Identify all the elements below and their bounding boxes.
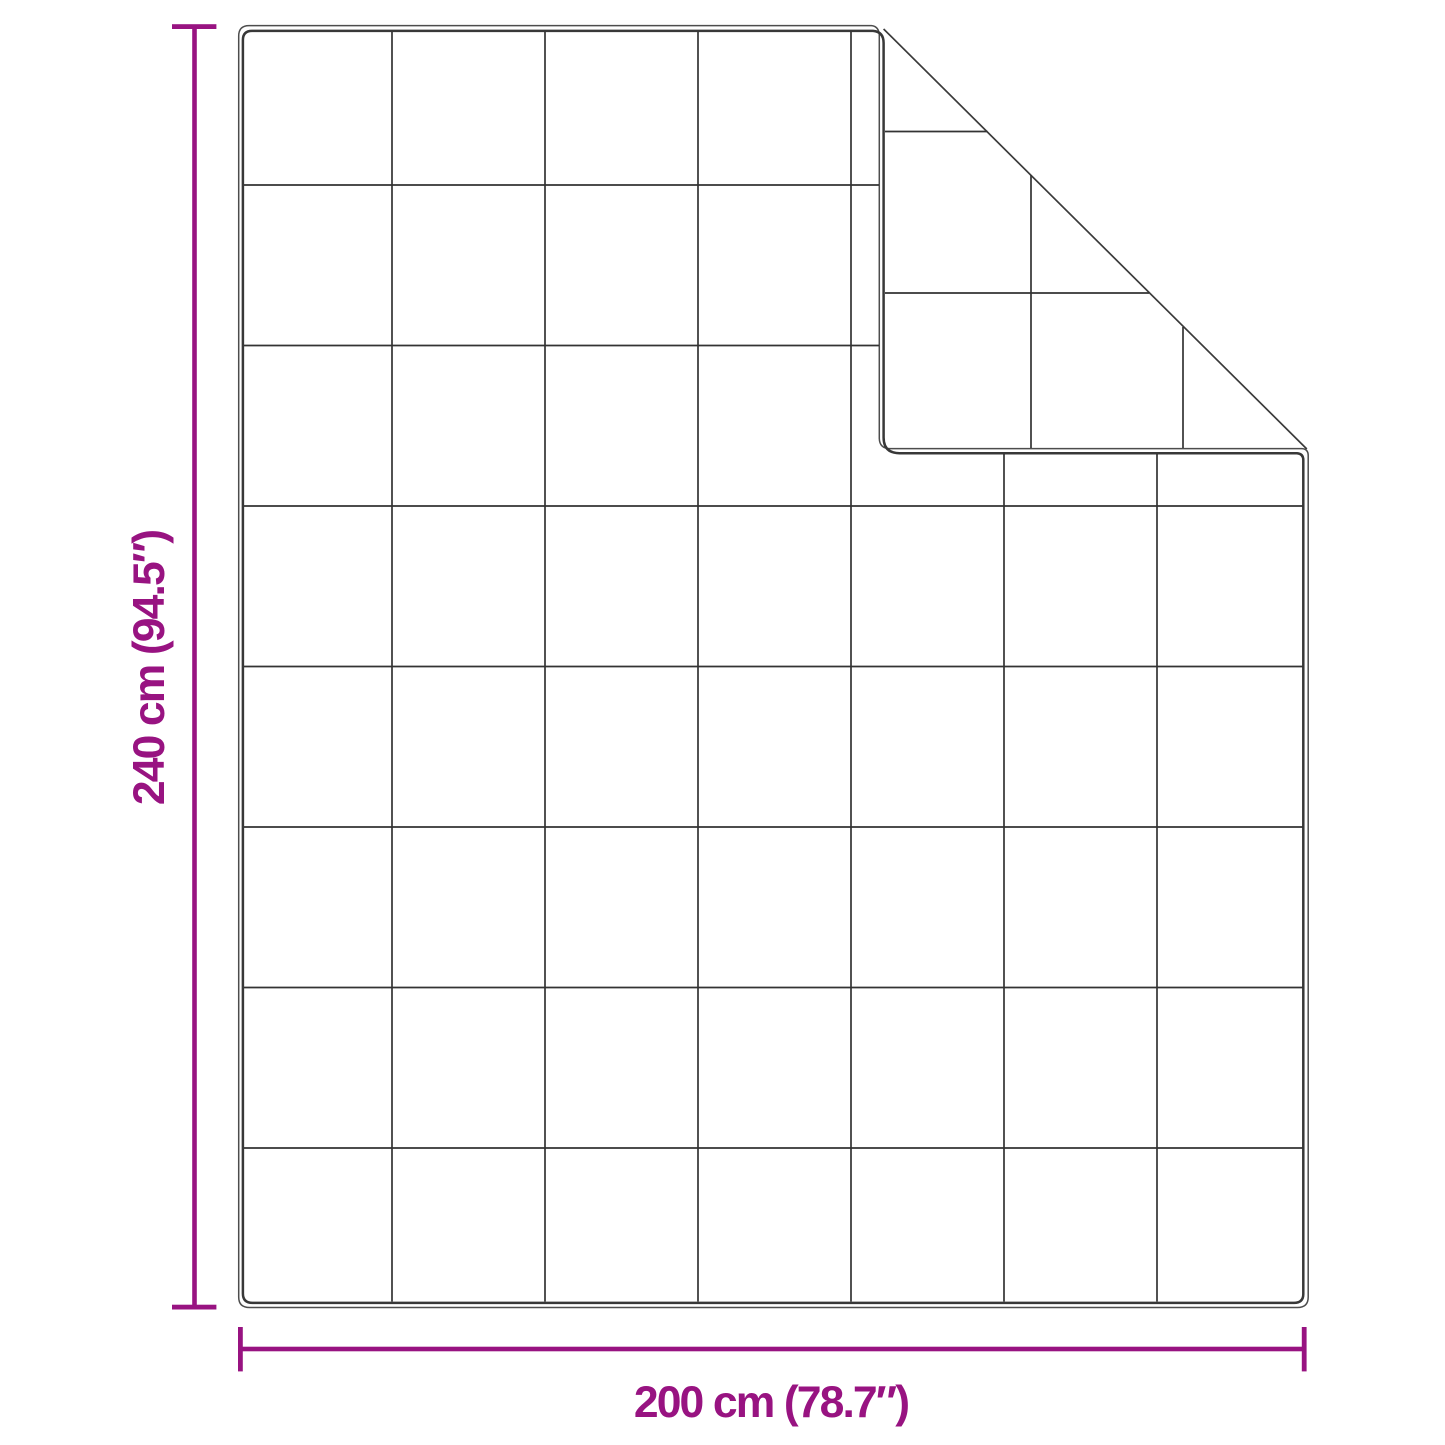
svg-text:200 cm (78.7″): 200 cm (78.7″) bbox=[634, 1378, 908, 1427]
svg-text:240 cm (94.5″): 240 cm (94.5″) bbox=[125, 531, 174, 805]
